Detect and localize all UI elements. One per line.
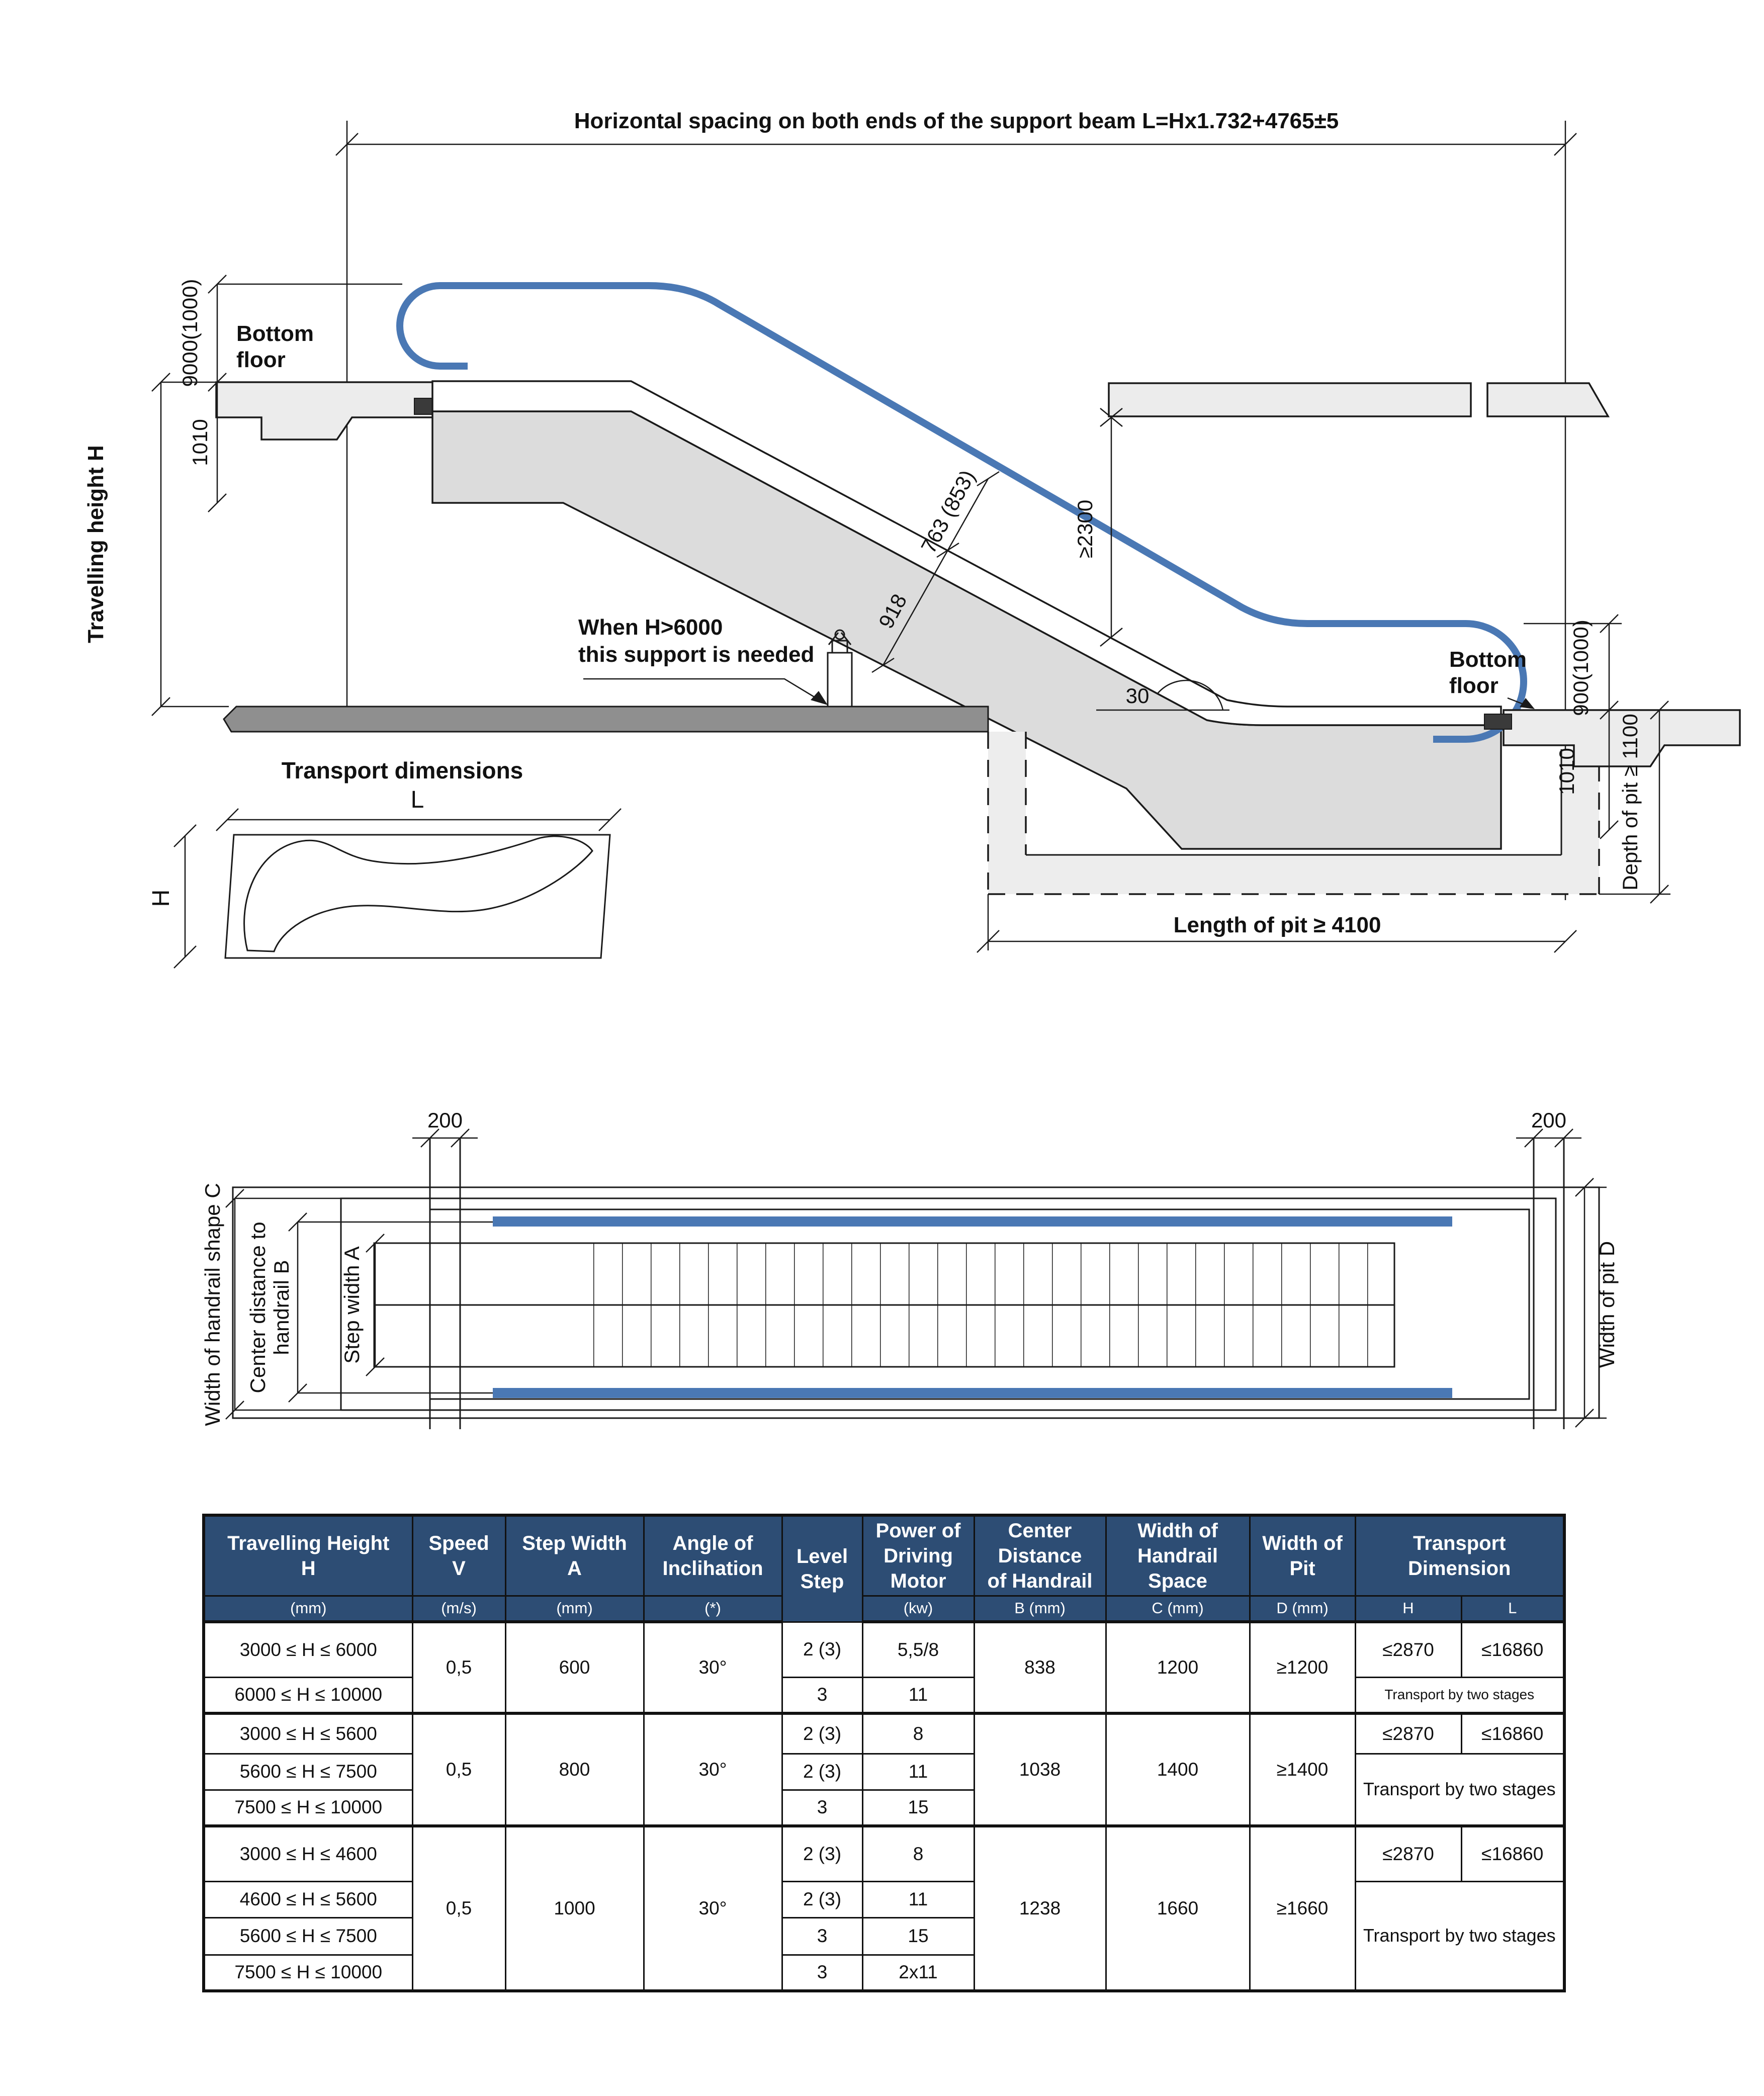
- svg-text:Bottom: Bottom: [236, 321, 314, 346]
- cell-transport-l: ≤16860: [1461, 1622, 1564, 1677]
- col-header-level-step: LevelStep: [782, 1515, 862, 1622]
- cell-level-step: 2 (3): [782, 1754, 862, 1790]
- left-truss-depth-label: 1010: [188, 419, 212, 466]
- cell-height-range: 6000 ≤ H ≤ 10000: [204, 1677, 412, 1713]
- handrail-bar-bottom: [493, 1388, 1452, 1398]
- pit-width-dim: Width of pit D: [1575, 1178, 1619, 1427]
- col-header-step-width: Step WidthA: [505, 1515, 644, 1596]
- transport-dimensions: Transport dimensions L H: [148, 757, 621, 968]
- handrail-bar-top: [493, 1216, 1452, 1227]
- col-header-center-distance: CenterDistanceof Handrail: [974, 1515, 1106, 1596]
- transport-height-label: H: [148, 890, 174, 907]
- support-note: When H>6000 this support is needed: [578, 615, 828, 705]
- cell-handrail-space: 1400: [1106, 1713, 1250, 1826]
- cell-height-range: 7500 ≤ H ≤ 10000: [204, 1955, 412, 1991]
- cell-power: 11: [862, 1881, 974, 1917]
- unit-transport-l: L: [1461, 1596, 1564, 1622]
- cell-step-width: 1000: [505, 1826, 644, 1991]
- pit-length-dimension: Length of pit ≥ 4100: [977, 894, 1576, 952]
- cell-transport-h: ≤2870: [1355, 1622, 1461, 1677]
- travelling-height-label: Travelling height H: [83, 445, 108, 643]
- unit-travelling: (mm): [204, 1596, 412, 1622]
- cell-angle: 30°: [644, 1826, 782, 1991]
- specification-table: Travelling HeightH SpeedV Step WidthA An…: [202, 1514, 1566, 1992]
- cell-height-range: 4600 ≤ H ≤ 5600: [204, 1881, 412, 1917]
- cell-width-pit: ≥1200: [1250, 1622, 1355, 1713]
- cell-angle: 30°: [644, 1622, 782, 1713]
- unit-speed: (m/s): [412, 1596, 505, 1622]
- svg-text:200: 200: [1531, 1108, 1566, 1132]
- cell-center-distance: 1038: [974, 1713, 1106, 1826]
- cell-power: 2x11: [862, 1955, 974, 1991]
- cell-power: 11: [862, 1754, 974, 1790]
- cell-height-range: 5600 ≤ H ≤ 7500: [204, 1754, 412, 1790]
- escalator-spec-sheet: Horizontal spacing on both ends of the s…: [0, 0, 1764, 2096]
- svg-text:Width of handrail shape C: Width of handrail shape C: [201, 1183, 224, 1426]
- cell-power: 8: [862, 1826, 974, 1881]
- col-header-angle: Angle ofInclihation: [644, 1515, 782, 1596]
- col-header-transport: TransportDimension: [1355, 1515, 1564, 1596]
- cell-center-distance: 838: [974, 1622, 1106, 1713]
- pit-depth-label: Depth of pit ≥ 1100: [1618, 714, 1642, 891]
- cell-height-range: 7500 ≤ H ≤ 10000: [204, 1790, 412, 1826]
- unit-angle: (*): [644, 1596, 782, 1622]
- unit-width-pit: D (mm): [1250, 1596, 1355, 1622]
- cell-handrail-space: 1200: [1106, 1622, 1250, 1713]
- cell-power: 11: [862, 1677, 974, 1713]
- svg-text:200: 200: [427, 1108, 463, 1132]
- cell-step-width: 600: [505, 1622, 644, 1713]
- svg-text:this support is needed: this support is needed: [578, 642, 814, 667]
- cell-width-pit: ≥1660: [1250, 1826, 1355, 1991]
- cell-level-step: 3: [782, 1677, 862, 1713]
- svg-text:handrail B: handrail B: [270, 1260, 293, 1355]
- cell-angle: 30°: [644, 1713, 782, 1826]
- cell-level-step: 2 (3): [782, 1826, 862, 1881]
- cell-level-step: 3: [782, 1917, 862, 1955]
- unit-step-width: (mm): [505, 1596, 644, 1622]
- center-distance-dim: Center distance to handrail B: [246, 1213, 493, 1402]
- cell-transport-h: ≤2870: [1355, 1713, 1461, 1754]
- cell-power: 8: [862, 1713, 974, 1754]
- cell-power: 15: [862, 1790, 974, 1826]
- svg-text:floor: floor: [236, 347, 286, 372]
- cell-handrail-space: 1660: [1106, 1826, 1250, 1991]
- cell-level-step: 2 (3): [782, 1713, 862, 1754]
- headroom-dim-label: ≥2300: [1073, 500, 1097, 558]
- right-handrail-dim-label: 900(1000): [1569, 620, 1593, 716]
- cell-height-range: 3000 ≤ H ≤ 6000: [204, 1622, 412, 1677]
- unit-power: (kw): [862, 1596, 974, 1622]
- bottom-floor-left-label: Bottom floor: [236, 321, 314, 372]
- svg-text:Width of pit D: Width of pit D: [1595, 1241, 1619, 1368]
- lower-floor-anchor: [1484, 714, 1512, 729]
- beam-width-dim-right: 200: [1516, 1108, 1581, 1147]
- svg-text:floor: floor: [1449, 673, 1498, 698]
- cell-step-width: 800: [505, 1713, 644, 1826]
- cell-power: 5,5/8: [862, 1622, 974, 1677]
- cell-level-step: 3: [782, 1955, 862, 1991]
- cell-height-range: 3000 ≤ H ≤ 4600: [204, 1826, 412, 1881]
- svg-text:Center distance to: Center distance to: [246, 1222, 270, 1393]
- cell-level-step: 2 (3): [782, 1881, 862, 1917]
- col-header-width-pit: Width ofPit: [1250, 1515, 1355, 1596]
- cell-level-step: 2 (3): [782, 1622, 862, 1677]
- cell-transport-note: Transport by two stages: [1355, 1881, 1564, 1991]
- left-handrail-dim-label: 9000(1000): [178, 279, 202, 387]
- top-dim-label: Horizontal spacing on both ends of the s…: [574, 109, 1339, 133]
- angle-label: 30: [1126, 684, 1150, 708]
- svg-text:Step width A: Step width A: [340, 1246, 364, 1363]
- cell-transport-h: ≤2870: [1355, 1826, 1461, 1881]
- cell-speed: 0,5: [412, 1826, 505, 1991]
- cell-height-range: 5600 ≤ H ≤ 7500: [204, 1917, 412, 1955]
- cell-speed: 0,5: [412, 1622, 505, 1713]
- svg-text:When H>6000: When H>6000: [578, 615, 723, 640]
- technical-drawing: Horizontal spacing on both ends of the s…: [0, 0, 1764, 1509]
- col-header-speed: SpeedV: [412, 1515, 505, 1596]
- plan-view: 200 200 Width of handrail shape C Center…: [201, 1108, 1619, 1429]
- cell-level-step: 3: [782, 1790, 862, 1826]
- beam-width-dim-left: 200: [412, 1108, 478, 1147]
- unit-handrail-space: C (mm): [1106, 1596, 1250, 1622]
- leader-arrow: [811, 691, 828, 705]
- cell-power: 15: [862, 1917, 974, 1955]
- cell-transport-l: ≤16860: [1461, 1826, 1564, 1881]
- cell-width-pit: ≥1400: [1250, 1713, 1355, 1826]
- upper-floor-slab: [216, 382, 433, 440]
- cell-height-range: 3000 ≤ H ≤ 5600: [204, 1713, 412, 1754]
- transport-title: Transport dimensions: [282, 757, 523, 783]
- col-header-travelling-height: Travelling HeightH: [204, 1515, 412, 1596]
- cell-center-distance: 1238: [974, 1826, 1106, 1991]
- ground-floor-bar: [224, 707, 988, 732]
- svg-text:Bottom: Bottom: [1449, 647, 1527, 672]
- pit-length-label: Length of pit ≥ 4100: [1174, 913, 1381, 937]
- cell-transport-note: Transport by two stages: [1355, 1754, 1564, 1826]
- transport-length-label: L: [411, 787, 424, 813]
- cell-transport-l: ≤16860: [1461, 1713, 1564, 1754]
- transport-escalator-outline: [244, 836, 592, 951]
- col-header-handrail-space: Width ofHandrailSpace: [1106, 1515, 1250, 1596]
- ceiling-slab: [1109, 383, 1471, 416]
- ceiling-slab-right: [1487, 383, 1608, 416]
- cell-speed: 0,5: [412, 1713, 505, 1826]
- col-header-power: Power ofDrivingMotor: [862, 1515, 974, 1596]
- unit-transport-h: H: [1355, 1596, 1461, 1622]
- unit-center-distance: B (mm): [974, 1596, 1106, 1622]
- right-truss-depth-label: 1010: [1555, 748, 1578, 795]
- cell-transport-note: Transport by two stages: [1355, 1677, 1564, 1713]
